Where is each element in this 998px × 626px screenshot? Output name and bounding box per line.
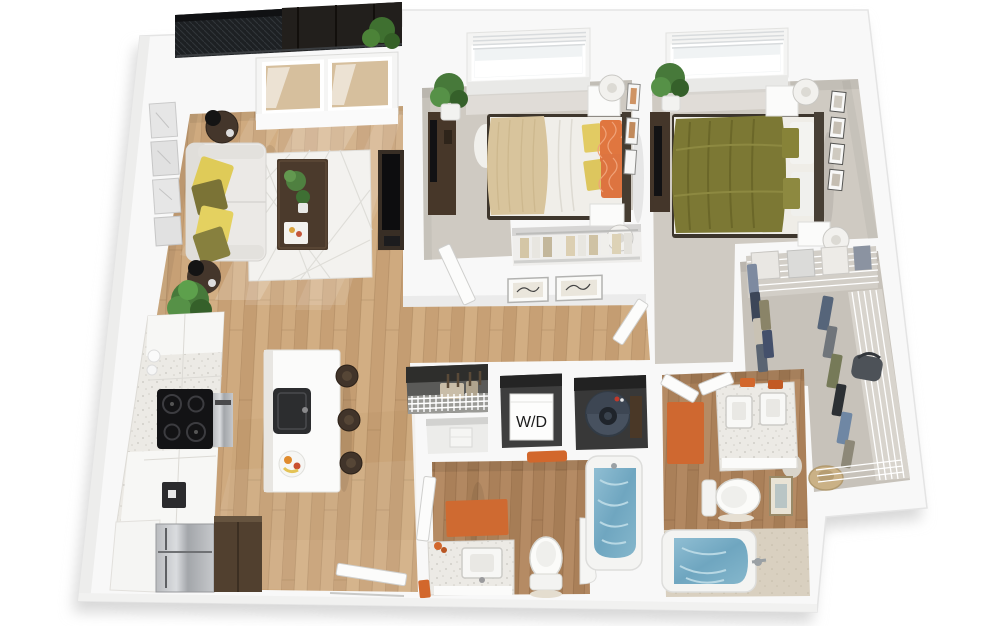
svg-text:W/D: W/D [516, 414, 547, 431]
